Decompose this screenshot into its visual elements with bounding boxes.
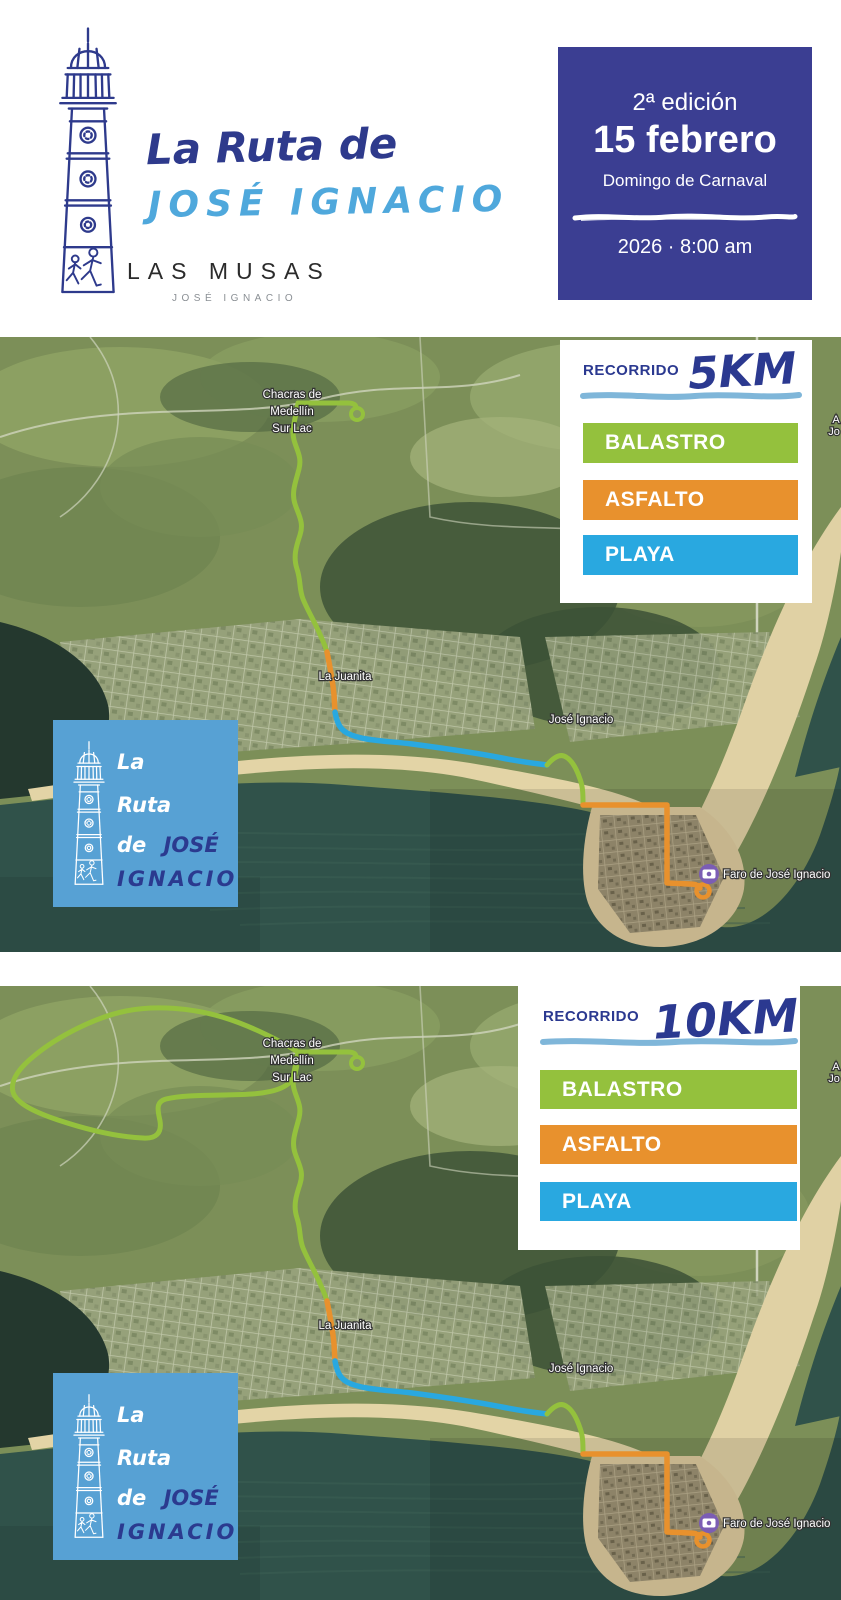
lighthouse-logo-icon bbox=[40, 16, 136, 312]
overlay-line-ruta: Ruta bbox=[117, 793, 171, 817]
legend-bar-playa-label: PLAYA bbox=[562, 1190, 632, 1214]
overlay-line-la: La bbox=[117, 750, 145, 774]
badge-brush-stroke bbox=[571, 211, 799, 223]
label-la-juanita: La Juanita bbox=[318, 671, 372, 683]
faro-poi-icon bbox=[699, 864, 719, 884]
legend-bar-asfalto: ASFALTO bbox=[540, 1125, 797, 1164]
legend-bar-playa-label: PLAYA bbox=[605, 543, 675, 567]
badge-time: 2026 · 8:00 am bbox=[618, 236, 753, 259]
label-la-juanita: La Juanita bbox=[318, 1320, 372, 1332]
brand-subtitle: JOSÉ IGNACIO bbox=[172, 293, 297, 304]
label-edge-fragment-a: A bbox=[832, 1061, 840, 1073]
recorrido-label: RECORRIDO bbox=[583, 362, 679, 379]
label-chacras-1: Chacras de bbox=[263, 1038, 322, 1050]
label-faro: Faro de José Ignacio bbox=[723, 869, 830, 881]
legend-bar-balastro: BALASTRO bbox=[540, 1070, 797, 1109]
label-chacras-3: Sur Lac bbox=[272, 423, 312, 435]
event-date-badge: 2ª edición 15 febrero Domingo de Carnava… bbox=[558, 47, 812, 300]
flyer-header: La Ruta de JOSÉ IGNACIO LAS MUSAS JOSÉ I… bbox=[0, 0, 841, 337]
brand-las-musas: LAS MUSAS bbox=[127, 258, 331, 285]
lighthouse-overlay-icon bbox=[59, 1393, 119, 1543]
lighthouse-overlay-icon bbox=[59, 740, 119, 890]
label-edge-fragment-a: A bbox=[832, 414, 840, 426]
legend-card-5km: RECORRIDO 5KM BALASTRO ASFALTO PLAYA bbox=[560, 340, 812, 603]
label-chacras-1: Chacras de bbox=[263, 389, 322, 401]
legend-card-10km: RECORRIDO 10KM BALASTRO ASFALTO PLAYA bbox=[518, 986, 800, 1250]
label-chacras-2: Medellín bbox=[270, 406, 313, 418]
legend-bar-balastro-label: BALASTRO bbox=[562, 1078, 683, 1102]
badge-subtitle: Domingo de Carnaval bbox=[603, 171, 767, 191]
legend-brush-stroke bbox=[580, 390, 802, 402]
legend-bar-balastro-label: BALASTRO bbox=[605, 431, 726, 455]
label-edge-fragment-jo: Jo bbox=[828, 426, 840, 438]
legend-bar-balastro: BALASTRO bbox=[583, 423, 798, 463]
label-edge-fragment-jo: Jo bbox=[828, 1073, 840, 1085]
legend-brush-stroke bbox=[540, 1036, 798, 1048]
map-5km-section: Chacras de Medellín Sur Lac La Juanita J… bbox=[0, 337, 841, 952]
legend-bar-playa: PLAYA bbox=[583, 535, 798, 575]
map-10km-section: Chacras de Medellín Sur Lac La Juanita J… bbox=[0, 986, 841, 1600]
overlay-line-la: La bbox=[117, 1403, 145, 1427]
overlay-line-ignacio: IGNACIO bbox=[117, 867, 237, 891]
badge-edition: 2ª edición bbox=[633, 89, 738, 117]
faro-poi-icon bbox=[699, 1513, 719, 1533]
badge-date: 15 febrero bbox=[593, 119, 777, 162]
event-title-line2: JOSÉ IGNACIO bbox=[148, 179, 510, 226]
label-chacras-3: Sur Lac bbox=[272, 1072, 312, 1084]
legend-bar-asfalto-label: ASFALTO bbox=[605, 488, 705, 512]
label-jose-ignacio: José Ignacio bbox=[549, 714, 614, 726]
label-faro: Faro de José Ignacio bbox=[723, 1518, 830, 1530]
overlay-line-de-jose: de JOSÉ bbox=[117, 1486, 219, 1510]
route-logo-overlay: La Ruta de JOSÉ IGNACIO bbox=[53, 1373, 238, 1560]
label-chacras-2: Medellín bbox=[270, 1055, 313, 1067]
legend-bar-asfalto: ASFALTO bbox=[583, 480, 798, 520]
overlay-line-ruta: Ruta bbox=[117, 1446, 171, 1470]
legend-bar-playa: PLAYA bbox=[540, 1182, 797, 1221]
recorrido-label: RECORRIDO bbox=[543, 1008, 639, 1025]
event-title-line1: La Ruta de bbox=[145, 119, 397, 175]
overlay-line-de-jose: de JOSÉ bbox=[117, 833, 219, 857]
legend-bar-asfalto-label: ASFALTO bbox=[562, 1133, 662, 1157]
overlay-line-ignacio: IGNACIO bbox=[117, 1520, 237, 1544]
label-jose-ignacio: José Ignacio bbox=[549, 1363, 614, 1375]
route-logo-overlay: La Ruta de JOSÉ IGNACIO bbox=[53, 720, 238, 907]
